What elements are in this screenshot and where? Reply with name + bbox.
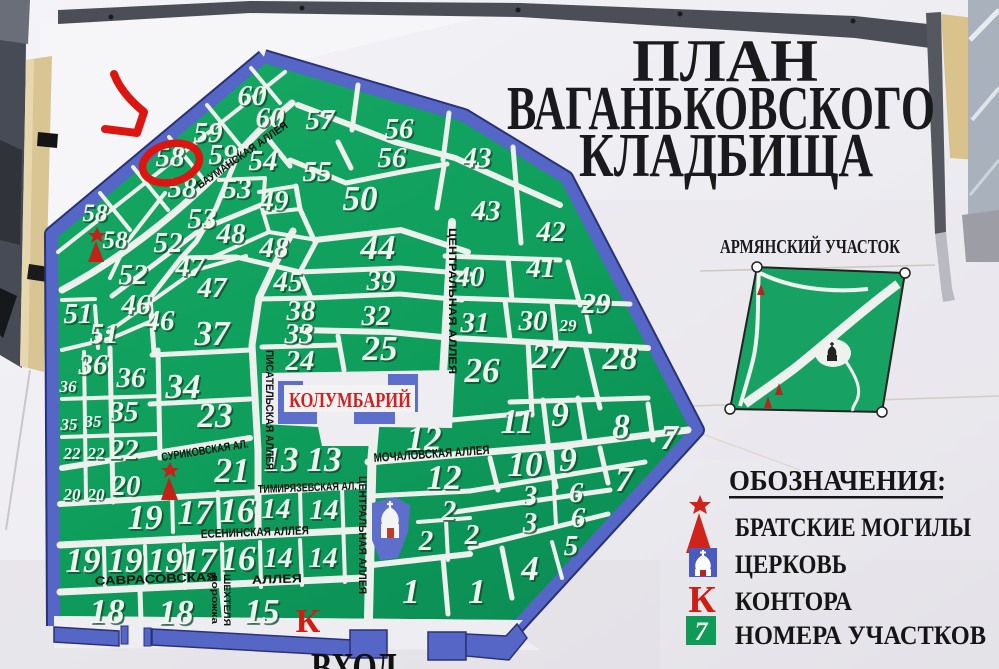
svg-text:3: 3 bbox=[522, 507, 538, 539]
svg-text:56: 56 bbox=[385, 113, 415, 145]
svg-text:35: 35 bbox=[60, 415, 79, 434]
svg-text:15: 15 bbox=[245, 592, 280, 631]
svg-text:56: 56 bbox=[378, 142, 408, 174]
svg-text:31: 31 bbox=[460, 307, 490, 339]
svg-text:5: 5 bbox=[564, 530, 579, 562]
svg-text:22: 22 bbox=[87, 444, 106, 463]
svg-text:7: 7 bbox=[695, 617, 709, 646]
svg-text:13: 13 bbox=[307, 440, 342, 479]
svg-text:14: 14 bbox=[309, 542, 338, 574]
svg-text:51: 51 bbox=[90, 318, 119, 350]
svg-text:57: 57 bbox=[306, 104, 337, 136]
svg-text:16: 16 bbox=[220, 491, 256, 530]
svg-text:ОБОЗНАЧЕНИЯ:: ОБОЗНАЧЕНИЯ: bbox=[729, 466, 946, 497]
svg-text:ВХОД: ВХОД bbox=[311, 646, 397, 669]
svg-text:18: 18 bbox=[90, 592, 125, 631]
svg-text:37: 37 bbox=[194, 314, 232, 353]
svg-text:4: 4 bbox=[520, 549, 539, 588]
svg-text:ЦЕНТРАЛЬНАЯ АЛЛЕЯ: ЦЕНТРАЛЬНАЯ АЛЛЕЯ bbox=[356, 476, 368, 594]
svg-text:35: 35 bbox=[109, 396, 139, 428]
svg-text:НОМЕРА УЧАСТКОВ: НОМЕРА УЧАСТКОВ bbox=[735, 621, 986, 650]
svg-text:БРАТСКИЕ МОГИЛЫ: БРАТСКИЕ МОГИЛЫ bbox=[735, 513, 971, 542]
svg-text:ЦЕРКОВЬ: ЦЕРКОВЬ bbox=[735, 550, 847, 579]
svg-text:10: 10 bbox=[508, 445, 543, 484]
svg-text:44: 44 bbox=[360, 228, 396, 267]
svg-text:АЛЛЕЯ: АЛЛЕЯ bbox=[252, 571, 302, 587]
svg-text:7: 7 bbox=[660, 418, 679, 457]
svg-text:12: 12 bbox=[427, 458, 462, 497]
svg-text:41: 41 bbox=[526, 252, 556, 284]
svg-text:ШЕХТЕЛЯ: ШЕХТЕЛЯ bbox=[221, 574, 232, 626]
svg-text:23: 23 bbox=[197, 396, 233, 435]
svg-text:7: 7 bbox=[615, 460, 634, 499]
svg-text:46: 46 bbox=[145, 305, 176, 337]
svg-text:КОНТОРА: КОНТОРА bbox=[735, 587, 852, 616]
svg-text:42: 42 bbox=[536, 216, 566, 248]
svg-text:50: 50 bbox=[343, 179, 378, 218]
svg-text:К: К bbox=[688, 579, 716, 621]
svg-text:22: 22 bbox=[109, 434, 139, 466]
svg-text:58: 58 bbox=[83, 200, 109, 227]
svg-text:28: 28 bbox=[602, 338, 638, 377]
svg-text:2: 2 bbox=[441, 495, 457, 527]
svg-text:11: 11 bbox=[500, 402, 533, 441]
svg-text:ПИСАТЕЛЬСКАЯ АЛЛЕЯ: ПИСАТЕЛЬСКАЯ АЛЛЕЯ bbox=[263, 350, 275, 470]
svg-text:36: 36 bbox=[116, 362, 147, 394]
svg-text:9: 9 bbox=[559, 440, 577, 479]
svg-text:45: 45 bbox=[273, 266, 303, 298]
svg-text:АРМЯНСКИЙ УЧАСТОК: АРМЯНСКИЙ УЧАСТОК bbox=[720, 235, 900, 258]
svg-text:дорожка: дорожка bbox=[209, 574, 220, 625]
svg-text:34: 34 bbox=[165, 367, 201, 406]
svg-text:47: 47 bbox=[197, 272, 229, 304]
svg-text:29: 29 bbox=[581, 288, 611, 320]
svg-text:53: 53 bbox=[188, 203, 217, 235]
svg-text:55: 55 bbox=[303, 156, 332, 188]
svg-text:14: 14 bbox=[264, 542, 293, 574]
svg-text:2: 2 bbox=[464, 519, 480, 551]
svg-text:51: 51 bbox=[64, 298, 93, 330]
svg-text:36: 36 bbox=[59, 377, 78, 396]
svg-text:2: 2 bbox=[418, 525, 434, 557]
svg-text:18: 18 bbox=[159, 593, 194, 632]
svg-text:КОЛУМБАРИЙ: КОЛУМБАРИЙ bbox=[289, 388, 411, 412]
svg-text:20: 20 bbox=[63, 485, 82, 504]
svg-text:ЦЕНТРАЛЬНАЯ АЛЛЕЯ: ЦЕНТРАЛЬНАЯ АЛЛЕЯ bbox=[446, 228, 458, 374]
svg-text:22: 22 bbox=[63, 444, 82, 463]
svg-text:43: 43 bbox=[471, 195, 501, 227]
svg-text:38: 38 bbox=[286, 295, 317, 327]
svg-text:9: 9 bbox=[551, 395, 569, 434]
svg-text:36: 36 bbox=[78, 349, 109, 381]
svg-text:К: К bbox=[296, 603, 321, 640]
svg-text:30: 30 bbox=[518, 305, 548, 337]
svg-text:8: 8 bbox=[612, 407, 630, 446]
svg-text:53: 53 bbox=[223, 173, 252, 205]
svg-text:43: 43 bbox=[462, 142, 492, 174]
svg-text:26: 26 bbox=[464, 351, 501, 390]
svg-text:27: 27 bbox=[531, 337, 569, 376]
svg-text:35: 35 bbox=[84, 412, 103, 431]
svg-text:20: 20 bbox=[87, 485, 106, 504]
svg-text:КЛАДБИЩА: КЛАДБИЩА bbox=[579, 122, 873, 190]
svg-text:58: 58 bbox=[103, 227, 129, 254]
svg-text:52: 52 bbox=[119, 259, 148, 291]
svg-text:40: 40 bbox=[455, 261, 485, 293]
svg-text:48: 48 bbox=[216, 218, 247, 250]
svg-text:19: 19 bbox=[128, 498, 163, 537]
svg-text:21: 21 bbox=[214, 451, 250, 490]
svg-text:25: 25 bbox=[362, 329, 398, 368]
svg-text:14: 14 bbox=[310, 494, 339, 526]
svg-text:14: 14 bbox=[262, 493, 291, 525]
svg-text:1: 1 bbox=[468, 572, 486, 611]
svg-text:39: 39 bbox=[366, 265, 396, 297]
svg-text:49: 49 bbox=[259, 185, 289, 217]
svg-text:32: 32 bbox=[361, 300, 391, 332]
svg-text:1: 1 bbox=[402, 572, 420, 611]
svg-text:48: 48 bbox=[259, 232, 290, 264]
svg-text:29: 29 bbox=[559, 316, 578, 335]
